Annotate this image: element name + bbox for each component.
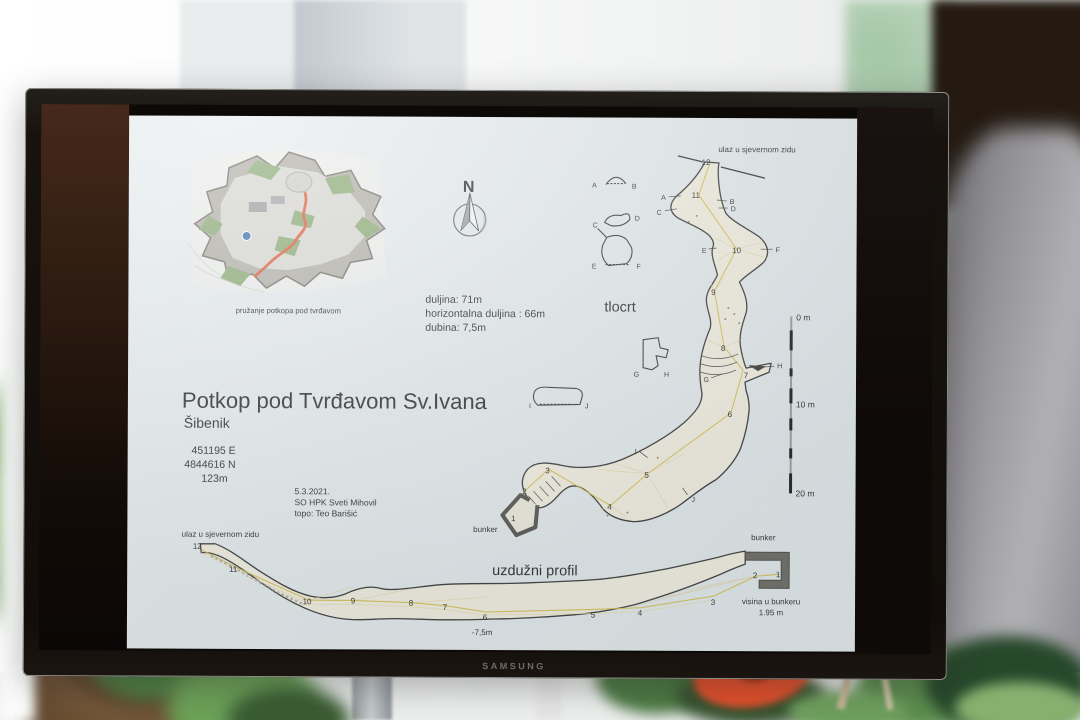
cross-sections bbox=[533, 177, 668, 406]
section-label-a: A bbox=[592, 182, 597, 189]
plan-label-d: D bbox=[731, 206, 736, 213]
section-label-d: D bbox=[635, 216, 640, 223]
plan-station-11: 11 bbox=[692, 191, 701, 200]
plan-bunker-label: bunker bbox=[473, 525, 498, 534]
fortress-wall-line bbox=[678, 156, 765, 178]
north-label: N bbox=[463, 179, 475, 196]
coordinate-northing: 4844616 N bbox=[184, 459, 235, 471]
plan-station-12: 12 bbox=[701, 158, 710, 167]
title-block: Potkop pod Tvrđavom Sv.Ivana Šibenik 451… bbox=[181, 388, 487, 519]
section-label-h: H bbox=[664, 372, 669, 379]
section-label-c: C bbox=[593, 222, 598, 229]
stat-horizontal-length: horizontalna duljina : 66m bbox=[425, 308, 545, 321]
section-ij-shape bbox=[533, 387, 582, 405]
inset-blue-marker bbox=[242, 231, 251, 240]
section-label-f: F bbox=[636, 264, 640, 271]
window-pillar-left bbox=[180, 0, 296, 96]
plan-station-5: 5 bbox=[644, 471, 649, 480]
window-pillar-center bbox=[294, 0, 466, 96]
north-arrow: N bbox=[454, 179, 486, 236]
profile-station-12: 12 bbox=[193, 542, 202, 551]
screen-reflection bbox=[39, 104, 129, 650]
survey-date: 5.3.2021. bbox=[295, 486, 330, 496]
plan-label-a: A bbox=[661, 195, 666, 202]
profile-station-4: 4 bbox=[638, 609, 643, 618]
section-cd-shape bbox=[605, 214, 630, 226]
plan-label-f: F bbox=[776, 247, 780, 254]
stat-length: duljina: 71m bbox=[425, 294, 482, 306]
plan-label-e: E bbox=[702, 248, 707, 255]
section-label-g: G bbox=[634, 372, 639, 379]
page-title: Potkop pod Tvrđavom Sv.Ivana bbox=[182, 388, 488, 414]
scale-bar: 0 m 10 m 20 m bbox=[791, 312, 816, 498]
inset-caption: pružanje potkopa pod tvrđavom bbox=[236, 306, 341, 315]
survey-org: SO HPK Sveti Mihovil bbox=[294, 497, 376, 507]
profile-view-label: uzdužni profil bbox=[492, 563, 578, 579]
tv-screen: pružanje potkopa pod tvrđavom N duljina:… bbox=[39, 104, 933, 654]
plan-station-7: 7 bbox=[744, 371, 749, 380]
profile-entrance-label: ulaz u sjevernom zidu bbox=[182, 530, 259, 539]
section-label-b: B bbox=[632, 184, 637, 191]
plan-label-i: I bbox=[635, 449, 637, 456]
profile-station-7: 7 bbox=[443, 603, 448, 612]
profile-depth-label: -7,5m bbox=[472, 628, 493, 637]
section-ab-shape bbox=[606, 177, 626, 184]
profile-station-3: 3 bbox=[711, 598, 716, 607]
profile-bunker-structure bbox=[745, 552, 789, 588]
survey-stats: duljina: 71m horizontalna duljina : 66m … bbox=[425, 294, 545, 335]
plan-station-8: 8 bbox=[721, 344, 726, 353]
scale-tick-20: 20 m bbox=[796, 488, 815, 498]
profile-station-9: 9 bbox=[351, 596, 356, 605]
cross-section-letters: A B C D E F G H I J bbox=[529, 182, 670, 411]
coordinate-altitude: 123m bbox=[201, 473, 228, 485]
plan-station-6: 6 bbox=[728, 410, 733, 419]
scale-tick-0: 0 m bbox=[796, 312, 810, 322]
bunker-height-label: visina u bunkeru bbox=[742, 597, 800, 606]
bunker-height-value: 1.95 m bbox=[759, 608, 784, 617]
photo-scene: pružanje potkopa pod tvrđavom N duljina:… bbox=[0, 0, 1080, 720]
plan-station-2: 2 bbox=[522, 487, 527, 496]
survey-topo: topo: Teo Barišić bbox=[294, 508, 357, 518]
stat-depth: dubina: 7,5m bbox=[425, 322, 486, 334]
section-gh-shape bbox=[643, 338, 668, 370]
stand-post bbox=[536, 678, 562, 720]
profile-station-10: 10 bbox=[303, 597, 312, 606]
survey-diagram: pružanje potkopa pod tvrđavom N duljina:… bbox=[127, 115, 857, 651]
section-ef-shape bbox=[602, 235, 632, 265]
profile-view: ulaz u sjevernom zidu bunker uzdužni pro… bbox=[181, 530, 800, 639]
section-label-i: I bbox=[529, 403, 531, 410]
plan-entrance-label: ulaz u sjevernom zidu bbox=[718, 145, 795, 154]
plan-passage-outline bbox=[522, 161, 772, 522]
page-subtitle: Šibenik bbox=[184, 415, 231, 431]
plan-label-b: B bbox=[730, 199, 735, 206]
screen-right-shade bbox=[855, 108, 933, 654]
section-label-e: E bbox=[592, 263, 597, 270]
profile-station-1: 1 bbox=[776, 570, 781, 579]
profile-station-8: 8 bbox=[409, 599, 414, 608]
scale-tick-10: 10 m bbox=[796, 399, 815, 409]
plan-station-10: 10 bbox=[732, 246, 741, 255]
plan-label-g: G bbox=[704, 377, 709, 384]
profile-station-6: 6 bbox=[483, 613, 488, 622]
survey-slide: pružanje potkopa pod tvrđavom N duljina:… bbox=[127, 115, 857, 651]
profile-station-5: 5 bbox=[591, 610, 596, 619]
coordinates: 451195 E 4844616 N 123m bbox=[184, 445, 236, 485]
profile-station-11: 11 bbox=[229, 565, 238, 574]
plan-view: ulaz u sjevernom zidu bbox=[473, 144, 796, 536]
plan-station-9: 9 bbox=[711, 288, 716, 297]
plan-station-3: 3 bbox=[545, 466, 550, 475]
plan-view-label: tlocrt bbox=[604, 300, 635, 316]
section-label-j: J bbox=[585, 403, 589, 410]
fortress-inset-map: pružanje potkopa pod tvrđavom bbox=[188, 150, 387, 316]
plan-label-c: C bbox=[657, 210, 662, 217]
coordinate-easting: 451195 E bbox=[191, 445, 235, 457]
tv-monitor: pružanje potkopa pod tvrđavom N duljina:… bbox=[23, 88, 950, 680]
samsung-logo: SAMSUNG bbox=[482, 661, 546, 671]
profile-station-2: 2 bbox=[753, 571, 758, 580]
credits: 5.3.2021. SO HPK Sveti Mihovil topo: Teo… bbox=[294, 486, 376, 518]
profile-bunker-label: bunker bbox=[751, 533, 776, 542]
plan-station-4: 4 bbox=[607, 503, 612, 512]
plan-label-j: J bbox=[691, 497, 695, 504]
plan-label-h: H bbox=[777, 363, 782, 370]
tv-stand-pole bbox=[352, 674, 392, 720]
plan-station-1: 1 bbox=[511, 514, 516, 523]
